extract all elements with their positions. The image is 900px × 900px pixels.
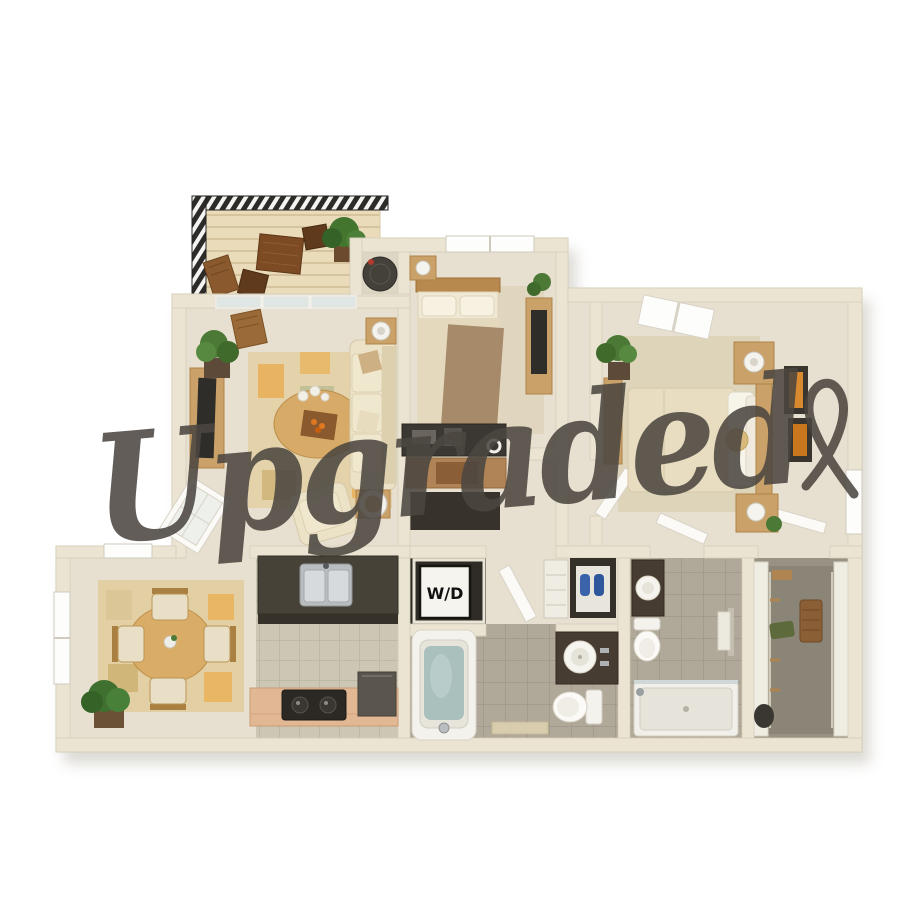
tub-faucet <box>439 723 449 733</box>
balcony-railing-left <box>192 196 206 300</box>
linen-cabinet <box>544 560 568 618</box>
vanity <box>556 632 618 684</box>
slipper <box>594 574 604 596</box>
dining-chair <box>152 588 188 620</box>
closet-floor-strip <box>768 566 834 734</box>
pillow <box>422 296 456 316</box>
balcony-railing-top <box>192 196 388 210</box>
wall <box>830 546 862 558</box>
dining-chair <box>112 626 144 662</box>
wall <box>172 294 216 308</box>
wall <box>350 238 446 252</box>
bath-mat <box>492 722 548 734</box>
floor-plan-image: W/D <box>0 0 900 900</box>
side-table-lamp <box>366 318 396 344</box>
wall <box>556 546 650 558</box>
bag <box>754 704 774 728</box>
pillow <box>460 296 494 316</box>
washer-dryer-label: W/D <box>427 584 464 603</box>
linen-nook <box>544 558 616 618</box>
wall <box>618 558 630 738</box>
shower-head <box>636 688 644 696</box>
wall <box>742 558 754 738</box>
hanging-garment <box>769 620 795 639</box>
closet-shelf-right <box>834 562 848 736</box>
floor-plan-svg: W/D <box>0 0 900 900</box>
kitchen-sink <box>300 563 352 606</box>
toilet <box>634 618 660 661</box>
dining-window <box>54 592 70 684</box>
slipper <box>580 574 590 596</box>
wicker-basket <box>800 600 822 642</box>
wall <box>350 296 410 308</box>
utility-closet <box>363 257 397 291</box>
dining-chair <box>204 626 236 662</box>
wall <box>534 238 568 252</box>
patio-table <box>256 234 304 274</box>
shelf-box <box>772 570 792 580</box>
wall <box>398 558 410 738</box>
sliding-glass-door <box>216 296 356 308</box>
bedroom-window <box>446 236 534 252</box>
shower <box>634 682 738 736</box>
nightstand <box>410 256 436 280</box>
stove <box>282 690 346 720</box>
towel-bar <box>718 608 734 656</box>
dining-chair <box>150 678 186 710</box>
vanity <box>632 560 664 616</box>
wall <box>704 546 758 558</box>
toilet <box>553 690 602 724</box>
refrigerator <box>358 672 396 716</box>
bathtub <box>412 630 476 740</box>
wall <box>568 288 862 302</box>
wood-chair <box>231 309 267 348</box>
